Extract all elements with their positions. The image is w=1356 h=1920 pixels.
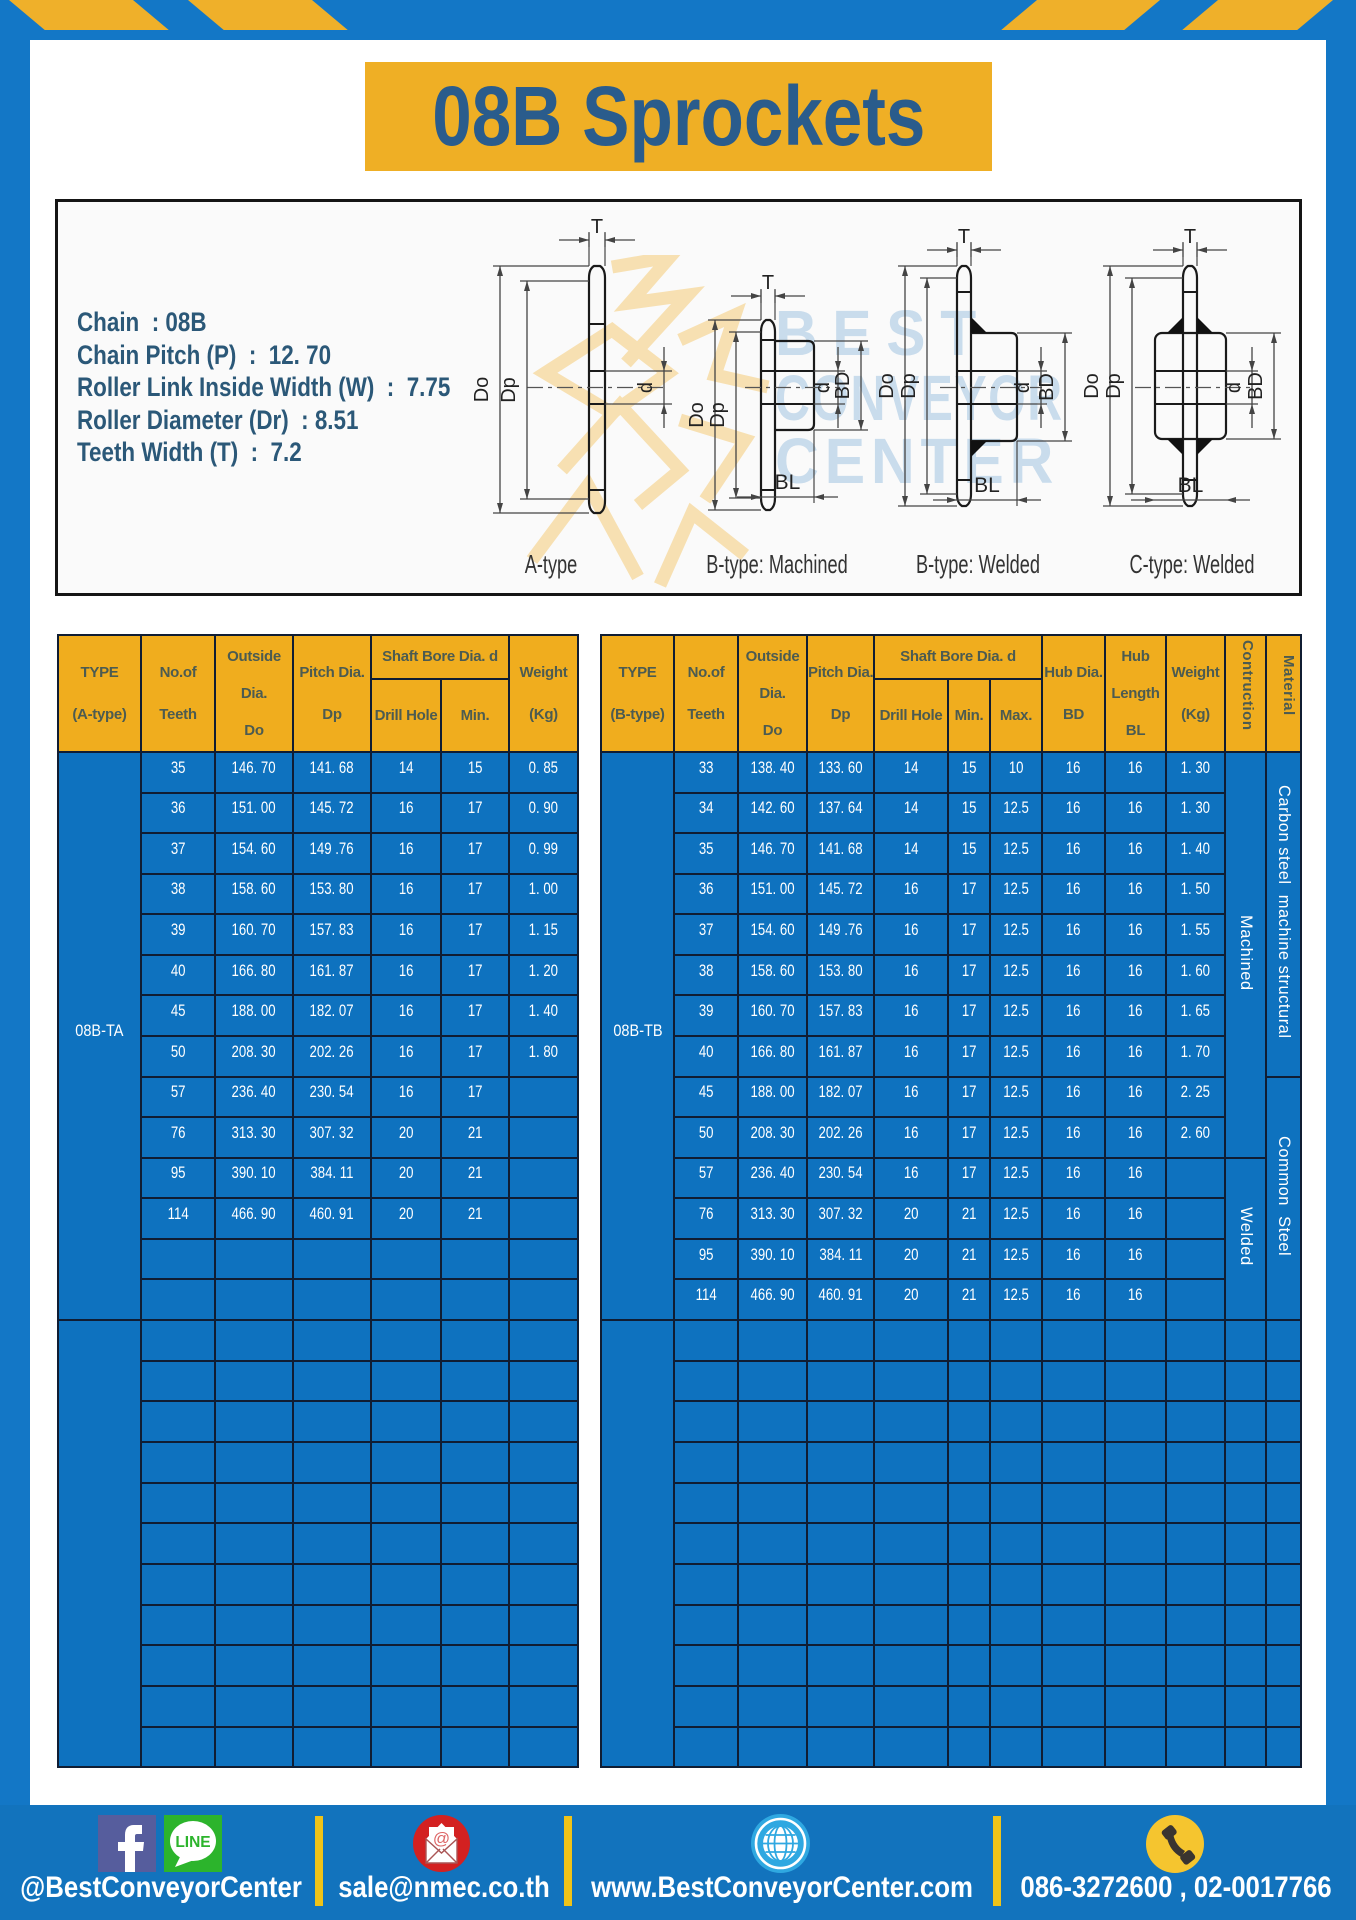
svg-text:Dp: Dp [898, 373, 920, 399]
svg-text:BD: BD [832, 372, 854, 400]
svg-text:BD: BD [1245, 372, 1267, 400]
svg-text:Dp: Dp [707, 402, 729, 428]
svg-text:T: T [591, 216, 603, 238]
svg-text:d: d [812, 382, 834, 393]
svg-text:A-type: A-type [525, 550, 578, 579]
svg-text:T: T [762, 272, 774, 294]
svg-text:d: d [635, 382, 657, 393]
svg-text:C-type: Welded: C-type: Welded [1129, 550, 1254, 579]
svg-text:Do: Do [471, 377, 493, 403]
svg-text:B-type: Machined: B-type: Machined [706, 550, 848, 579]
svg-text:BL: BL [974, 474, 1000, 497]
svg-text:Dp: Dp [1103, 373, 1125, 399]
svg-text:d: d [1223, 382, 1245, 393]
svg-text:T: T [1184, 226, 1196, 248]
svg-text:d: d [1012, 382, 1034, 393]
svg-text:LINE: LINE [175, 1834, 210, 1851]
svg-text:Do: Do [686, 402, 708, 428]
svg-text:B-type: Welded: B-type: Welded [916, 550, 1040, 579]
svg-text:BL: BL [1178, 474, 1204, 497]
svg-text:T: T [958, 226, 970, 248]
svg-text:BD: BD [1036, 373, 1058, 401]
svg-text:BL: BL [775, 471, 801, 494]
svg-text:@: @ [433, 1829, 450, 1848]
svg-text:Do: Do [876, 373, 898, 399]
svg-text:Do: Do [1081, 373, 1103, 399]
svg-text:Dp: Dp [498, 377, 520, 403]
